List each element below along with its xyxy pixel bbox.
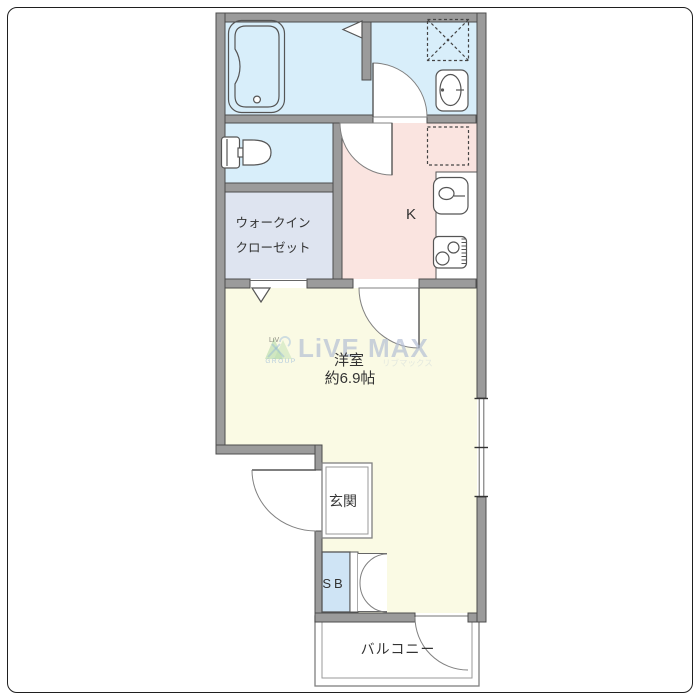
toilet-bowl	[243, 140, 271, 165]
wall-segment	[362, 22, 371, 80]
wall-segment	[477, 13, 486, 398]
shoe-box-panel	[350, 552, 358, 612]
wash-basin-icon	[436, 70, 468, 111]
toilet-tank	[222, 137, 240, 168]
floor-plan: LiV GROUP LiVE MAX リブマックス ウォークイン クローゼット …	[0, 0, 700, 700]
main-room-size-label: 約6.9帖	[325, 370, 376, 387]
bathtub-drain	[254, 96, 261, 103]
wall-segment	[315, 613, 415, 622]
toilet-icon	[222, 137, 272, 168]
floor-plan-page: LiV GROUP LiVE MAX リブマックス ウォークイン クローゼット …	[0, 0, 700, 700]
toilet-hinge	[238, 148, 243, 157]
wall-segment	[225, 279, 250, 288]
wic-label-line2: クローゼット	[235, 241, 310, 255]
balcony-label: バルコニー	[361, 641, 436, 657]
stove-icon	[434, 237, 467, 269]
basin-drain	[441, 88, 444, 91]
wall-segment	[427, 115, 476, 123]
wall-segment	[216, 445, 322, 454]
watermark-group-text: GROUP	[265, 358, 296, 365]
wic-label-line1: ウォークイン	[235, 216, 310, 230]
kitchen-sink-icon	[434, 178, 469, 215]
wall-segment	[315, 445, 322, 470]
watermark-katakana-text: リブマックス	[382, 358, 433, 368]
shoe-box-label: SB	[322, 576, 345, 591]
wall-segment	[225, 115, 373, 123]
wall-segment	[225, 183, 333, 192]
shoe-box-door-area	[358, 553, 387, 612]
door-swing-icon	[252, 470, 316, 531]
wall-segment	[333, 123, 342, 288]
wall-segment	[307, 279, 353, 288]
wall-segment	[315, 531, 322, 622]
wall-segment	[477, 497, 486, 622]
wall-segment	[419, 279, 476, 288]
kitchen-label: K	[406, 206, 416, 223]
genkan-label: 玄関	[329, 493, 357, 509]
wall-segment	[216, 13, 225, 454]
main-room-label: 洋室	[334, 352, 364, 369]
walk-in-closet-floor	[225, 192, 333, 279]
watermark-logo-top-text: LiV	[269, 337, 279, 344]
